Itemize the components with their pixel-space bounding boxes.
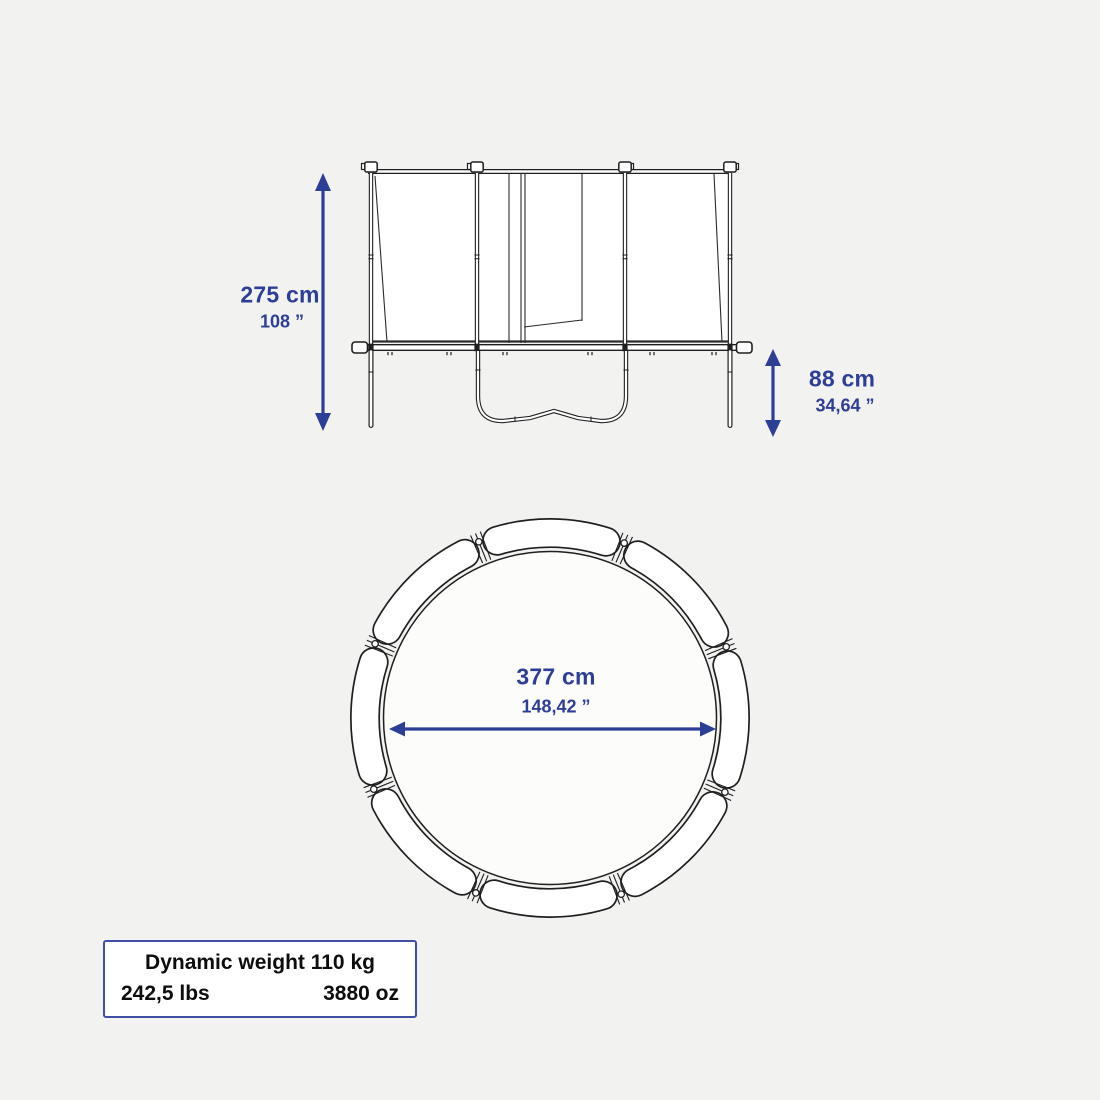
- height-value-label: 275 cm: [240, 282, 319, 309]
- height-imperial-label: 108 ”: [260, 312, 304, 333]
- pad-joint-dot: [618, 891, 624, 897]
- frame-height-value-label: 88 cm: [809, 366, 875, 393]
- pad-joint-dot: [722, 789, 728, 795]
- dynamic-weight-box: Dynamic weight 110 kg 242,5 lbs 3880 oz: [103, 940, 417, 1018]
- frame-height-imperial-label: 34,64 ”: [815, 396, 874, 417]
- pad-joint-dot: [723, 644, 729, 650]
- u-shaped-leg: [475, 351, 628, 422]
- pad-joint-dot: [372, 641, 378, 647]
- enclosure-net-panels: [373, 173, 728, 343]
- diameter-value-label: 377 cm: [516, 664, 595, 691]
- weight-ounces-value: 3880 oz: [323, 982, 399, 1006]
- product-dimensions-diagram: 275 cm 108 ” 88 cm 34,64 ” 377 cm 148,42…: [0, 0, 1100, 1100]
- frame-height-arrow-icon: [756, 342, 790, 444]
- outer-legs: [368, 352, 732, 426]
- pad-joint-dot: [371, 786, 377, 792]
- pad-joint-dot: [473, 890, 479, 896]
- pad-joint-dot: [476, 539, 482, 545]
- dynamic-weight-title: Dynamic weight 110 kg: [105, 951, 415, 975]
- spring-hooks: [388, 352, 716, 355]
- trampoline-side-view-drawing: [340, 140, 780, 440]
- jumping-mat-circle: [384, 552, 717, 885]
- diameter-imperial-label: 148,42 ”: [521, 697, 590, 718]
- trampoline-top-view-drawing: [344, 512, 756, 924]
- pad-joint-dot: [621, 540, 627, 546]
- weight-pounds-value: 242,5 lbs: [121, 982, 210, 1006]
